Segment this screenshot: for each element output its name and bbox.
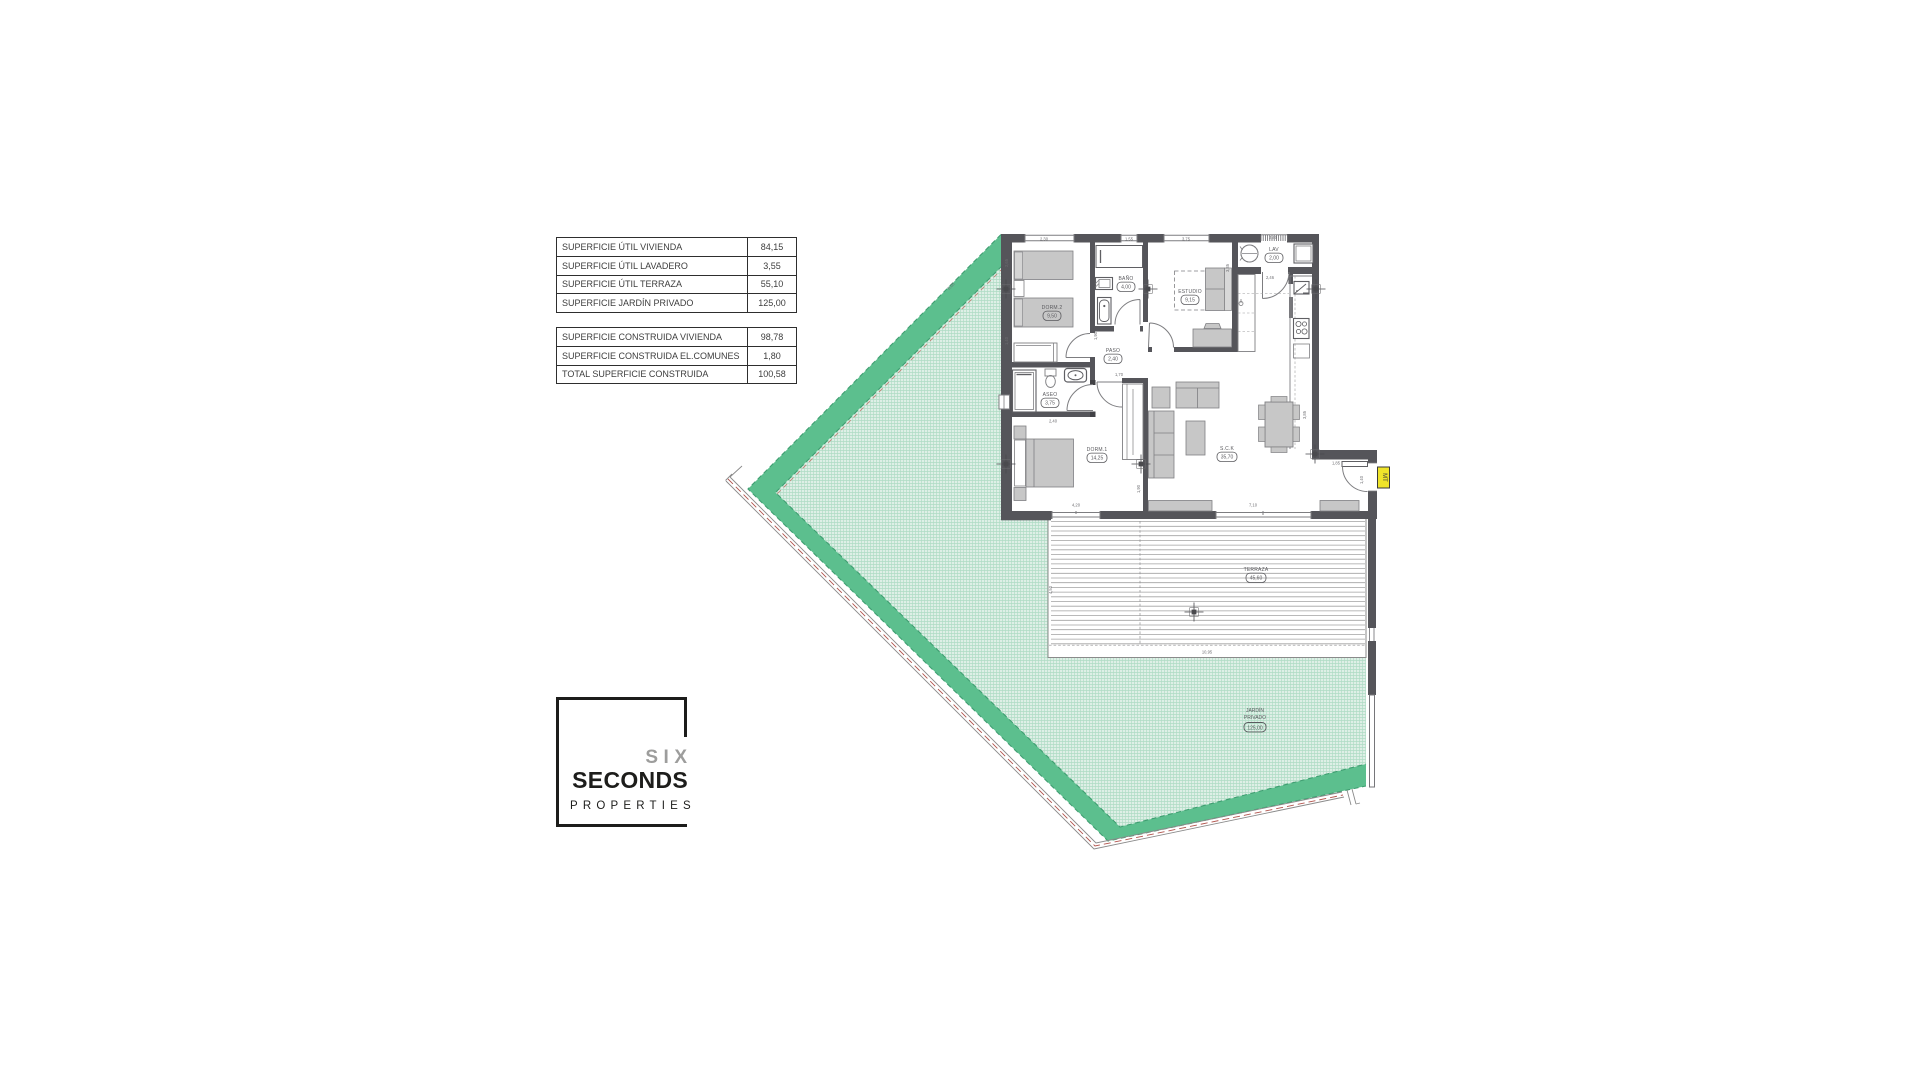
svg-text:ESTUDIO: ESTUDIO [1178,289,1202,295]
svg-text:1,40: 1,40 [1004,336,1009,345]
svg-text:1,40: 1,40 [1359,475,1364,484]
svg-text:10,95: 10,95 [1202,650,1213,655]
svg-text:3,75: 3,75 [1182,237,1191,242]
svg-text:2,40: 2,40 [1269,235,1278,240]
svg-text:7,10: 7,10 [1249,503,1258,508]
svg-text:1,70: 1,70 [1115,372,1124,377]
svg-text:3,75: 3,75 [1045,401,1055,407]
svg-text:2,65: 2,65 [1004,258,1009,267]
svg-text:35,70: 35,70 [1221,455,1234,461]
svg-text:4,50: 4,50 [1048,585,1053,594]
svg-text:ASEO: ASEO [1043,392,1058,398]
svg-text:2,46: 2,46 [1266,275,1275,280]
svg-text:PASO: PASO [1106,348,1120,354]
svg-text:4,20: 4,20 [1072,503,1081,508]
svg-text:TERRAZA: TERRAZA [1244,567,1269,573]
svg-text:2,30: 2,30 [1040,237,1049,242]
svg-text:4,00: 4,00 [1121,285,1131,291]
svg-text:DORM.2: DORM.2 [1042,305,1063,311]
svg-text:LAV: LAV [1269,247,1279,253]
svg-text:2,40: 2,40 [1108,357,1118,363]
svg-text:3,35: 3,35 [1225,263,1230,272]
svg-text:BAÑO: BAÑO [1119,275,1134,282]
svg-text:3,85: 3,85 [1302,410,1307,419]
svg-text:DORM.1: DORM.1 [1087,447,1108,453]
svg-text:1,85: 1,85 [1332,461,1341,466]
svg-text:45,60: 45,60 [1250,576,1263,582]
svg-text:1,90: 1,90 [1136,484,1141,493]
svg-text:9,15: 9,15 [1185,298,1195,304]
svg-text:JARDÍN: JARDÍN [1246,707,1264,714]
svg-text:9,50: 9,50 [1047,314,1057,320]
svg-text:MT: MT [1381,473,1387,482]
svg-text:1,55: 1,55 [1125,237,1134,242]
svg-text:2,00: 2,00 [1269,256,1279,262]
svg-text:S.C.K: S.C.K [1220,446,1235,452]
svg-text:14,25: 14,25 [1091,456,1104,462]
svg-text:2,40: 2,40 [1049,419,1058,424]
svg-text:PRIVADO: PRIVADO [1244,715,1266,721]
svg-text:1,90: 1,90 [1093,331,1098,340]
svg-text:125,00: 125,00 [1247,726,1263,732]
